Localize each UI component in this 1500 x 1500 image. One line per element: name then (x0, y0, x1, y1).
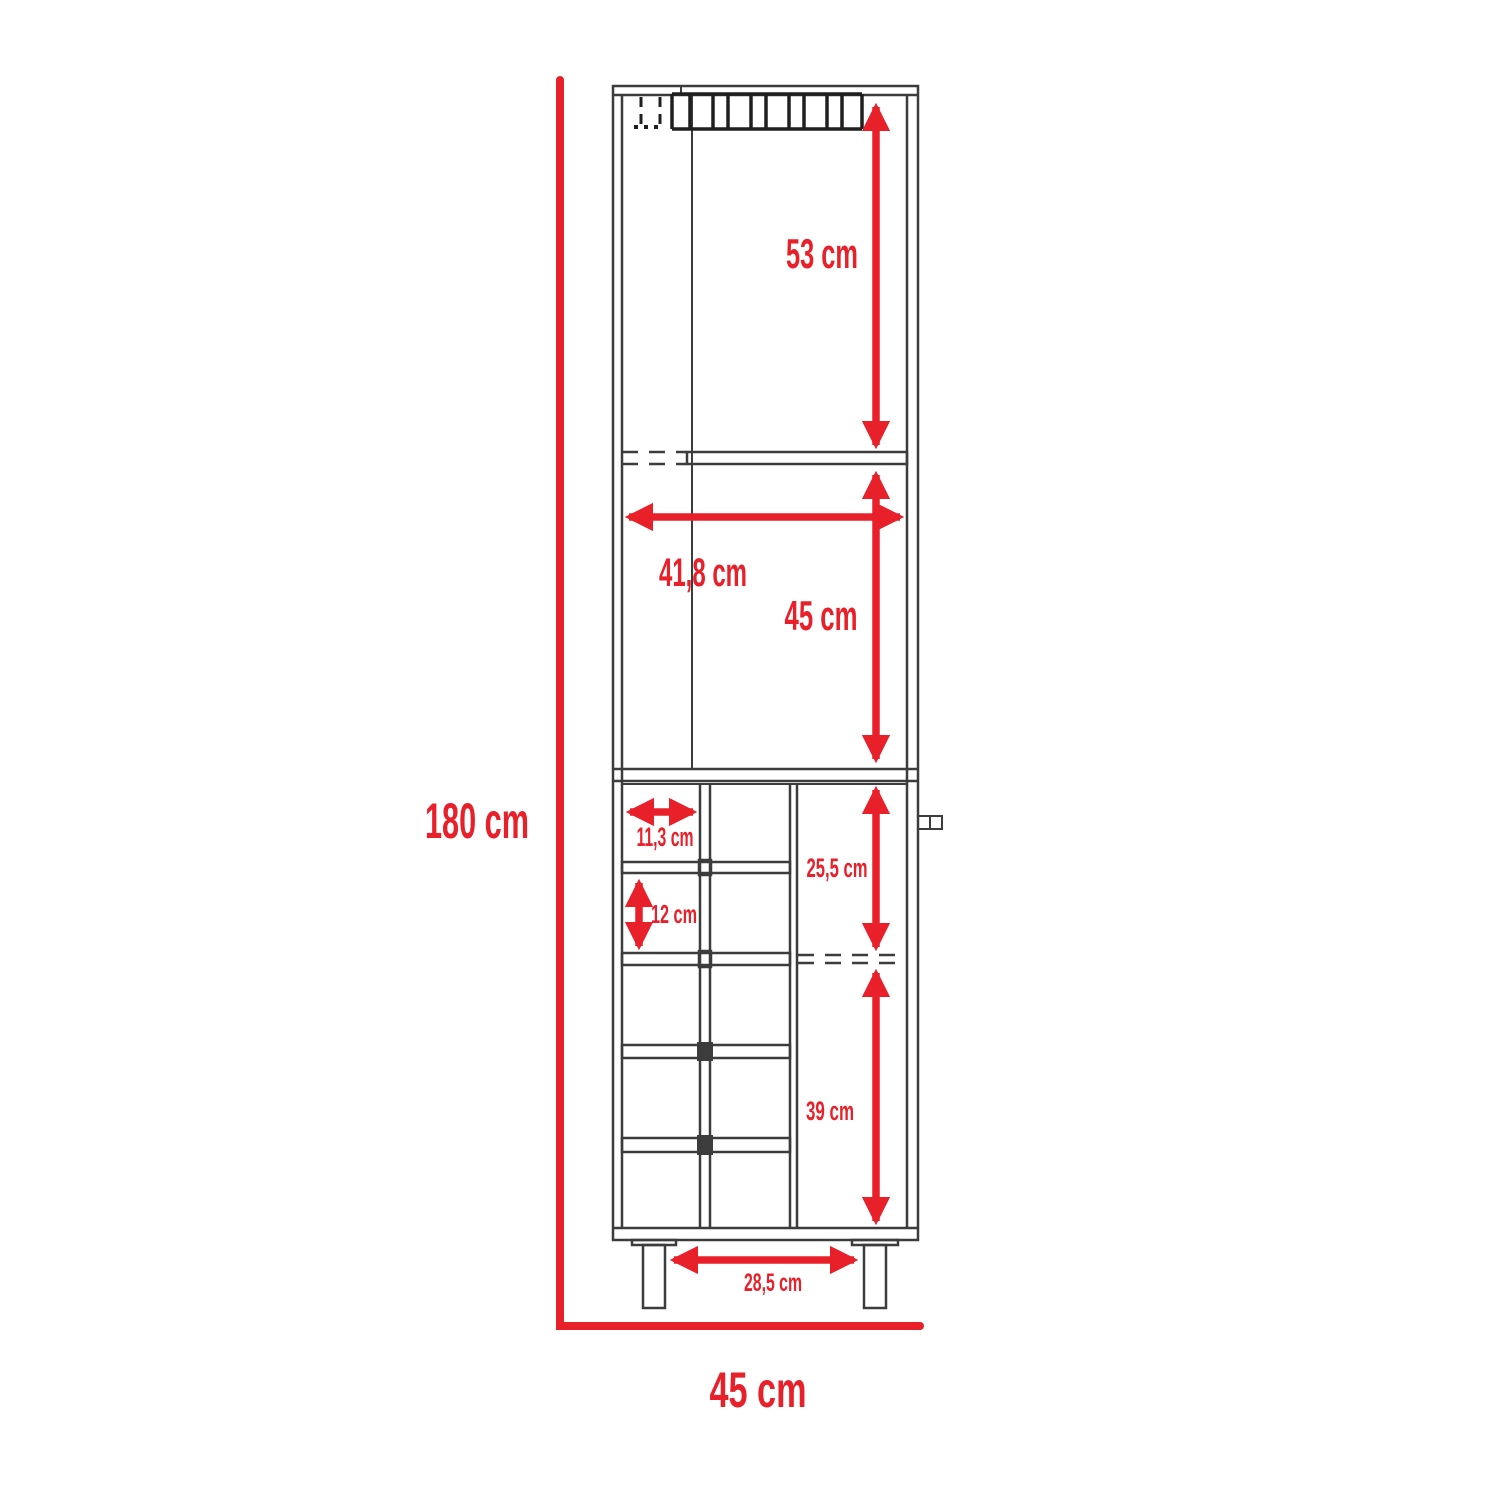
dim-label-overall-width: 45 cm (710, 1362, 807, 1418)
shelf-joint (698, 1136, 712, 1154)
right-leg (864, 1245, 886, 1308)
dim-label-overall-height: 180 cm (425, 793, 529, 849)
dimension-arrows (629, 107, 900, 1260)
dim-label-interior-width: 41,8 cm (659, 551, 747, 595)
dim-label-leg-spacing: 28,5 cm (744, 1269, 802, 1297)
shelf-joint (698, 1043, 712, 1060)
upper-shelf-board (687, 452, 907, 464)
glass-rack (634, 94, 862, 129)
dim-label-middle-section-height: 45 cm (785, 592, 858, 639)
cubby-shelf-2 (622, 953, 790, 965)
dim-label-top-section-height: 53 cm (786, 230, 858, 277)
glass-rack-dot (644, 125, 648, 129)
glass-rack-dot (634, 125, 638, 129)
glass-rack-dot (654, 125, 658, 129)
dim-label-door-lower-height: 39 cm (806, 1096, 854, 1126)
upper-shelf (622, 452, 907, 464)
dim-label-cubby-height: 12 cm (651, 899, 697, 929)
left-leg (643, 1245, 665, 1308)
cabinet-door (798, 816, 942, 963)
dim-label-door-upper-height: 25,5 cm (807, 853, 868, 883)
bar-cabinet-dimension-diagram: 180 cm 45 cm 53 cm 41,8 cm 45 cm 11,3 cm… (0, 0, 1500, 1500)
dim-label-cubby-width: 11,3 cm (637, 822, 694, 852)
dimension-diagram-canvas: 180 cm 45 cm 53 cm 41,8 cm 45 cm 11,3 cm… (0, 0, 1500, 1500)
cubby-shelf-1 (622, 862, 790, 873)
